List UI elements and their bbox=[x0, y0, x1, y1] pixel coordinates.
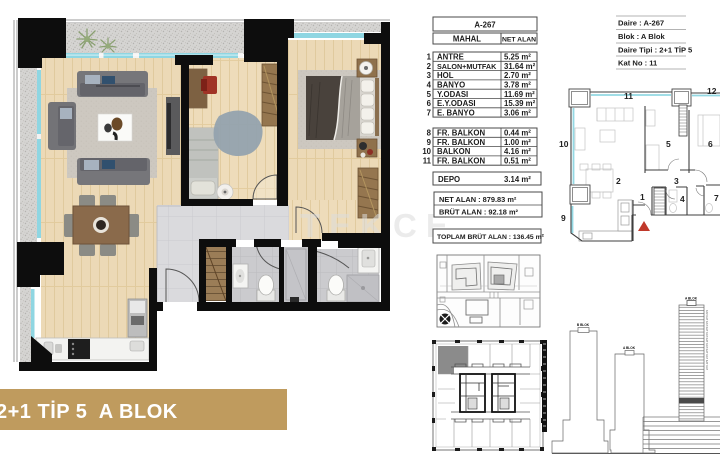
svg-text:DEPO: DEPO bbox=[438, 175, 460, 184]
svg-text:TOPLAM BRÜT ALAN : 136.45 m²: TOPLAM BRÜT ALAN : 136.45 m² bbox=[437, 232, 545, 241]
svg-text:8: 8 bbox=[427, 129, 432, 138]
svg-text:9: 9 bbox=[561, 213, 566, 223]
svg-text:B BLOK: B BLOK bbox=[577, 323, 590, 327]
svg-text:NET ALAN: NET ALAN bbox=[502, 37, 536, 44]
svg-text:2.70 m²: 2.70 m² bbox=[504, 71, 531, 80]
svg-text:11: 11 bbox=[423, 157, 432, 166]
svg-text:BANYO: BANYO bbox=[437, 81, 465, 90]
svg-text:FR. BALKON: FR. BALKON bbox=[437, 138, 485, 147]
svg-text:11.69 m²: 11.69 m² bbox=[504, 90, 535, 99]
svg-text:3.06 m²: 3.06 m² bbox=[504, 108, 531, 117]
svg-text:SALON+MUTFAK: SALON+MUTFAK bbox=[437, 62, 497, 71]
svg-text:BRÜT ALAN : 92.18 m²: BRÜT ALAN : 92.18 m² bbox=[439, 207, 519, 216]
svg-text:MAHAL: MAHAL bbox=[453, 35, 481, 44]
svg-text:2+1 TİP 5 A BLOK: 2+1 TİP 5 A BLOK bbox=[0, 400, 178, 423]
svg-text:FR. BALKON: FR. BALKON bbox=[437, 157, 485, 166]
svg-text:6: 6 bbox=[708, 139, 713, 149]
svg-text:FR. BALKON: FR. BALKON bbox=[437, 129, 485, 138]
svg-text:A BLOK: A BLOK bbox=[623, 346, 636, 350]
svg-text:1: 1 bbox=[640, 192, 645, 202]
svg-text:1.00 m²: 1.00 m² bbox=[504, 138, 531, 147]
svg-text:Daire Tipi : 2+1 TİP 5: Daire Tipi : 2+1 TİP 5 bbox=[618, 46, 693, 55]
svg-text:A-267: A-267 bbox=[474, 21, 495, 30]
svg-text:KAT KAT KAT KAT KAT KAT KAT KA: KAT KAT KAT KAT KAT KAT KAT KAT KAT KAT … bbox=[705, 310, 709, 371]
svg-text:2: 2 bbox=[427, 62, 432, 71]
svg-text:4: 4 bbox=[427, 81, 432, 90]
svg-text:4: 4 bbox=[680, 194, 685, 204]
svg-text:0.51 m²: 0.51 m² bbox=[504, 157, 531, 166]
svg-text:3.14 m²: 3.14 m² bbox=[504, 175, 531, 184]
svg-text:5: 5 bbox=[427, 90, 432, 99]
svg-text:Kat No : 11: Kat No : 11 bbox=[618, 59, 658, 68]
svg-text:E.Y.ODASI: E.Y.ODASI bbox=[437, 99, 476, 108]
svg-text:A BLOK: A BLOK bbox=[685, 297, 698, 301]
svg-text:3: 3 bbox=[674, 176, 679, 186]
svg-text:Daire : A-267: Daire : A-267 bbox=[618, 19, 664, 28]
svg-text:E. BANYO: E. BANYO bbox=[437, 108, 475, 117]
svg-text:0.44 m²: 0.44 m² bbox=[504, 129, 531, 138]
svg-text:10: 10 bbox=[559, 139, 569, 149]
svg-text:5: 5 bbox=[666, 139, 671, 149]
svg-text:Blok : A Blok: Blok : A Blok bbox=[618, 32, 665, 41]
svg-text:BALKON: BALKON bbox=[437, 147, 471, 156]
svg-text:2: 2 bbox=[616, 176, 621, 186]
svg-text:7: 7 bbox=[427, 108, 431, 117]
svg-text:11: 11 bbox=[624, 91, 633, 101]
svg-text:4.16 m²: 4.16 m² bbox=[504, 147, 531, 156]
svg-text:7: 7 bbox=[714, 193, 719, 203]
svg-text:12: 12 bbox=[707, 86, 717, 96]
svg-text:ANTRE: ANTRE bbox=[437, 53, 464, 62]
svg-text:Y.ODASI: Y.ODASI bbox=[437, 90, 468, 99]
svg-text:15.39 m²: 15.39 m² bbox=[504, 99, 536, 108]
svg-text:6: 6 bbox=[427, 99, 432, 108]
svg-text:10: 10 bbox=[422, 147, 431, 156]
svg-text:5.25 m²: 5.25 m² bbox=[504, 53, 531, 62]
svg-text:31.64 m²: 31.64 m² bbox=[504, 62, 536, 71]
svg-text:3.78 m²: 3.78 m² bbox=[504, 81, 531, 90]
svg-text:3: 3 bbox=[427, 71, 432, 80]
svg-text:1: 1 bbox=[427, 53, 432, 62]
svg-text:9: 9 bbox=[427, 138, 432, 147]
svg-text:NET ALAN : 879.83 m²: NET ALAN : 879.83 m² bbox=[439, 195, 517, 204]
svg-text:HOL: HOL bbox=[437, 71, 454, 80]
